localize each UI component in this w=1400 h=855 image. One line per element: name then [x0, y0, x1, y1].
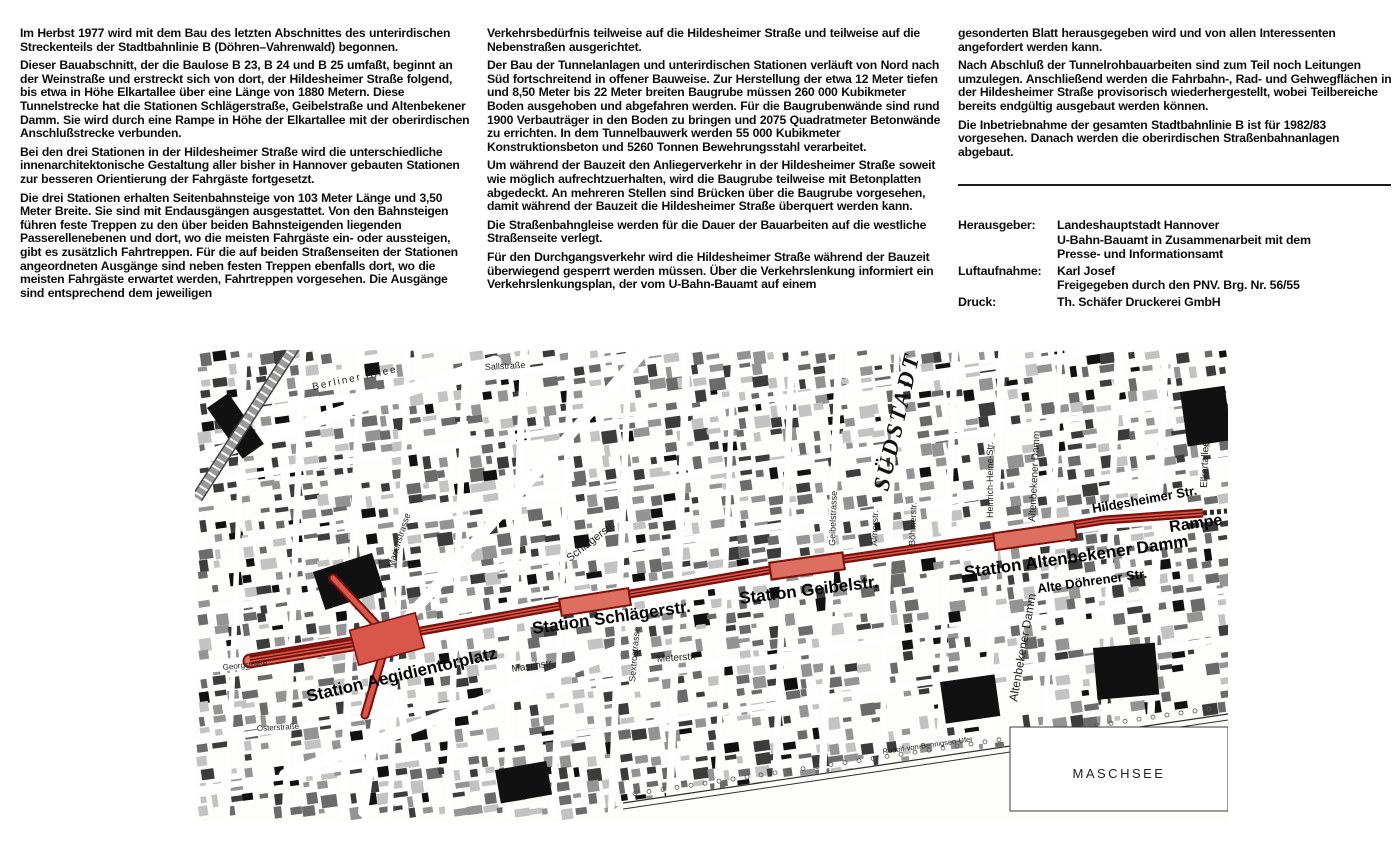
imprint-row: Herausgeber:Landeshauptstadt HannoverU-B…: [958, 218, 1391, 262]
paragraph: Verkehrsbedürfnis teilweise auf die Hild…: [487, 27, 944, 54]
paragraph: Im Herbst 1977 wird mit dem Bau des letz…: [20, 27, 470, 54]
lake-label-maschsee: MASCHSEE: [1073, 766, 1166, 781]
street-name-label: Elkartallee: [1199, 441, 1212, 488]
paragraph: Dieser Bauabschnitt, der die Baulose B 2…: [20, 59, 470, 141]
street-name-label: Heinrich-Heine-Str.: [985, 442, 995, 518]
imprint-value-line: Landeshauptstadt Hannover: [1057, 218, 1391, 233]
imprint: Herausgeber:Landeshauptstadt HannoverU-B…: [958, 184, 1391, 312]
imprint-rows: Herausgeber:Landeshauptstadt HannoverU-B…: [958, 218, 1391, 310]
imprint-value: Karl JosefFreigegeben durch den PNV. Brg…: [1057, 264, 1391, 293]
paragraph: Der Bau der Tunnelanlagen und unterirdis…: [487, 59, 944, 154]
paragraph: gesonderten Blatt herausgegeben wird und…: [958, 27, 1395, 54]
paragraph: Bei den drei Stationen in der Hildesheim…: [20, 146, 470, 187]
brochure-page: Im Herbst 1977 wird mit dem Bau des letz…: [0, 0, 1400, 855]
street-name-label: Almerstr.: [869, 510, 880, 546]
street-name-label: Böhmerstr.: [907, 502, 919, 546]
text-column-3: gesonderten Blatt herausgegeben wird und…: [958, 27, 1395, 164]
imprint-value-line: Freigegeben durch den PNV. Brg. Nr. 56/5…: [1057, 278, 1391, 293]
paragraph: Für den Durchgangsverkehr wird die Hilde…: [487, 251, 944, 292]
imprint-label: Druck:: [958, 295, 1057, 310]
paragraph: Nach Abschluß der Tunnelrohbauarbeiten s…: [958, 59, 1395, 113]
imprint-divider: [958, 184, 1391, 186]
imprint-value: Landeshauptstadt HannoverU-Bahn-Bauamt i…: [1057, 218, 1391, 262]
imprint-value: Th. Schäfer Druckerei GmbH: [1057, 295, 1391, 310]
text-column-1: Im Herbst 1977 wird mit dem Bau des letz…: [20, 27, 470, 305]
imprint-value-line: U-Bahn-Bauamt in Zusammenarbeit mit dem: [1057, 233, 1391, 248]
imprint-label: Herausgeber:: [958, 218, 1057, 262]
text-column-2: Verkehrsbedürfnis teilweise auf die Hild…: [487, 27, 944, 297]
city-map-svg: SallstraßeBerliner AlleeMarienstrasseSch…: [195, 350, 1228, 822]
imprint-row: Luftaufnahme:Karl JosefFreigegeben durch…: [958, 264, 1391, 293]
imprint-value-line: Karl Josef: [1057, 264, 1391, 279]
paragraph: Die drei Stationen erhalten Seitenbahnst…: [20, 192, 470, 301]
paragraph: Die Straßenbahngleise werden für die Dau…: [487, 219, 944, 246]
imprint-row: Druck:Th. Schäfer Druckerei GmbH: [958, 295, 1391, 310]
imprint-label: Luftaufnahme:: [958, 264, 1057, 293]
paragraph: Um während der Bauzeit den Anliegerverke…: [487, 159, 944, 213]
imprint-value-line: Presse- und Informationsamt: [1057, 247, 1391, 262]
paragraph: Die Inbetriebnahme der gesamten Stadtbah…: [958, 119, 1395, 160]
imprint-value-line: Th. Schäfer Druckerei GmbH: [1057, 295, 1391, 310]
street-name-label: Geibelstrasse: [827, 491, 839, 546]
street-name-label: Sallstraße: [485, 360, 526, 372]
city-map: SallstraßeBerliner AlleeMarienstrasseSch…: [195, 350, 1228, 822]
